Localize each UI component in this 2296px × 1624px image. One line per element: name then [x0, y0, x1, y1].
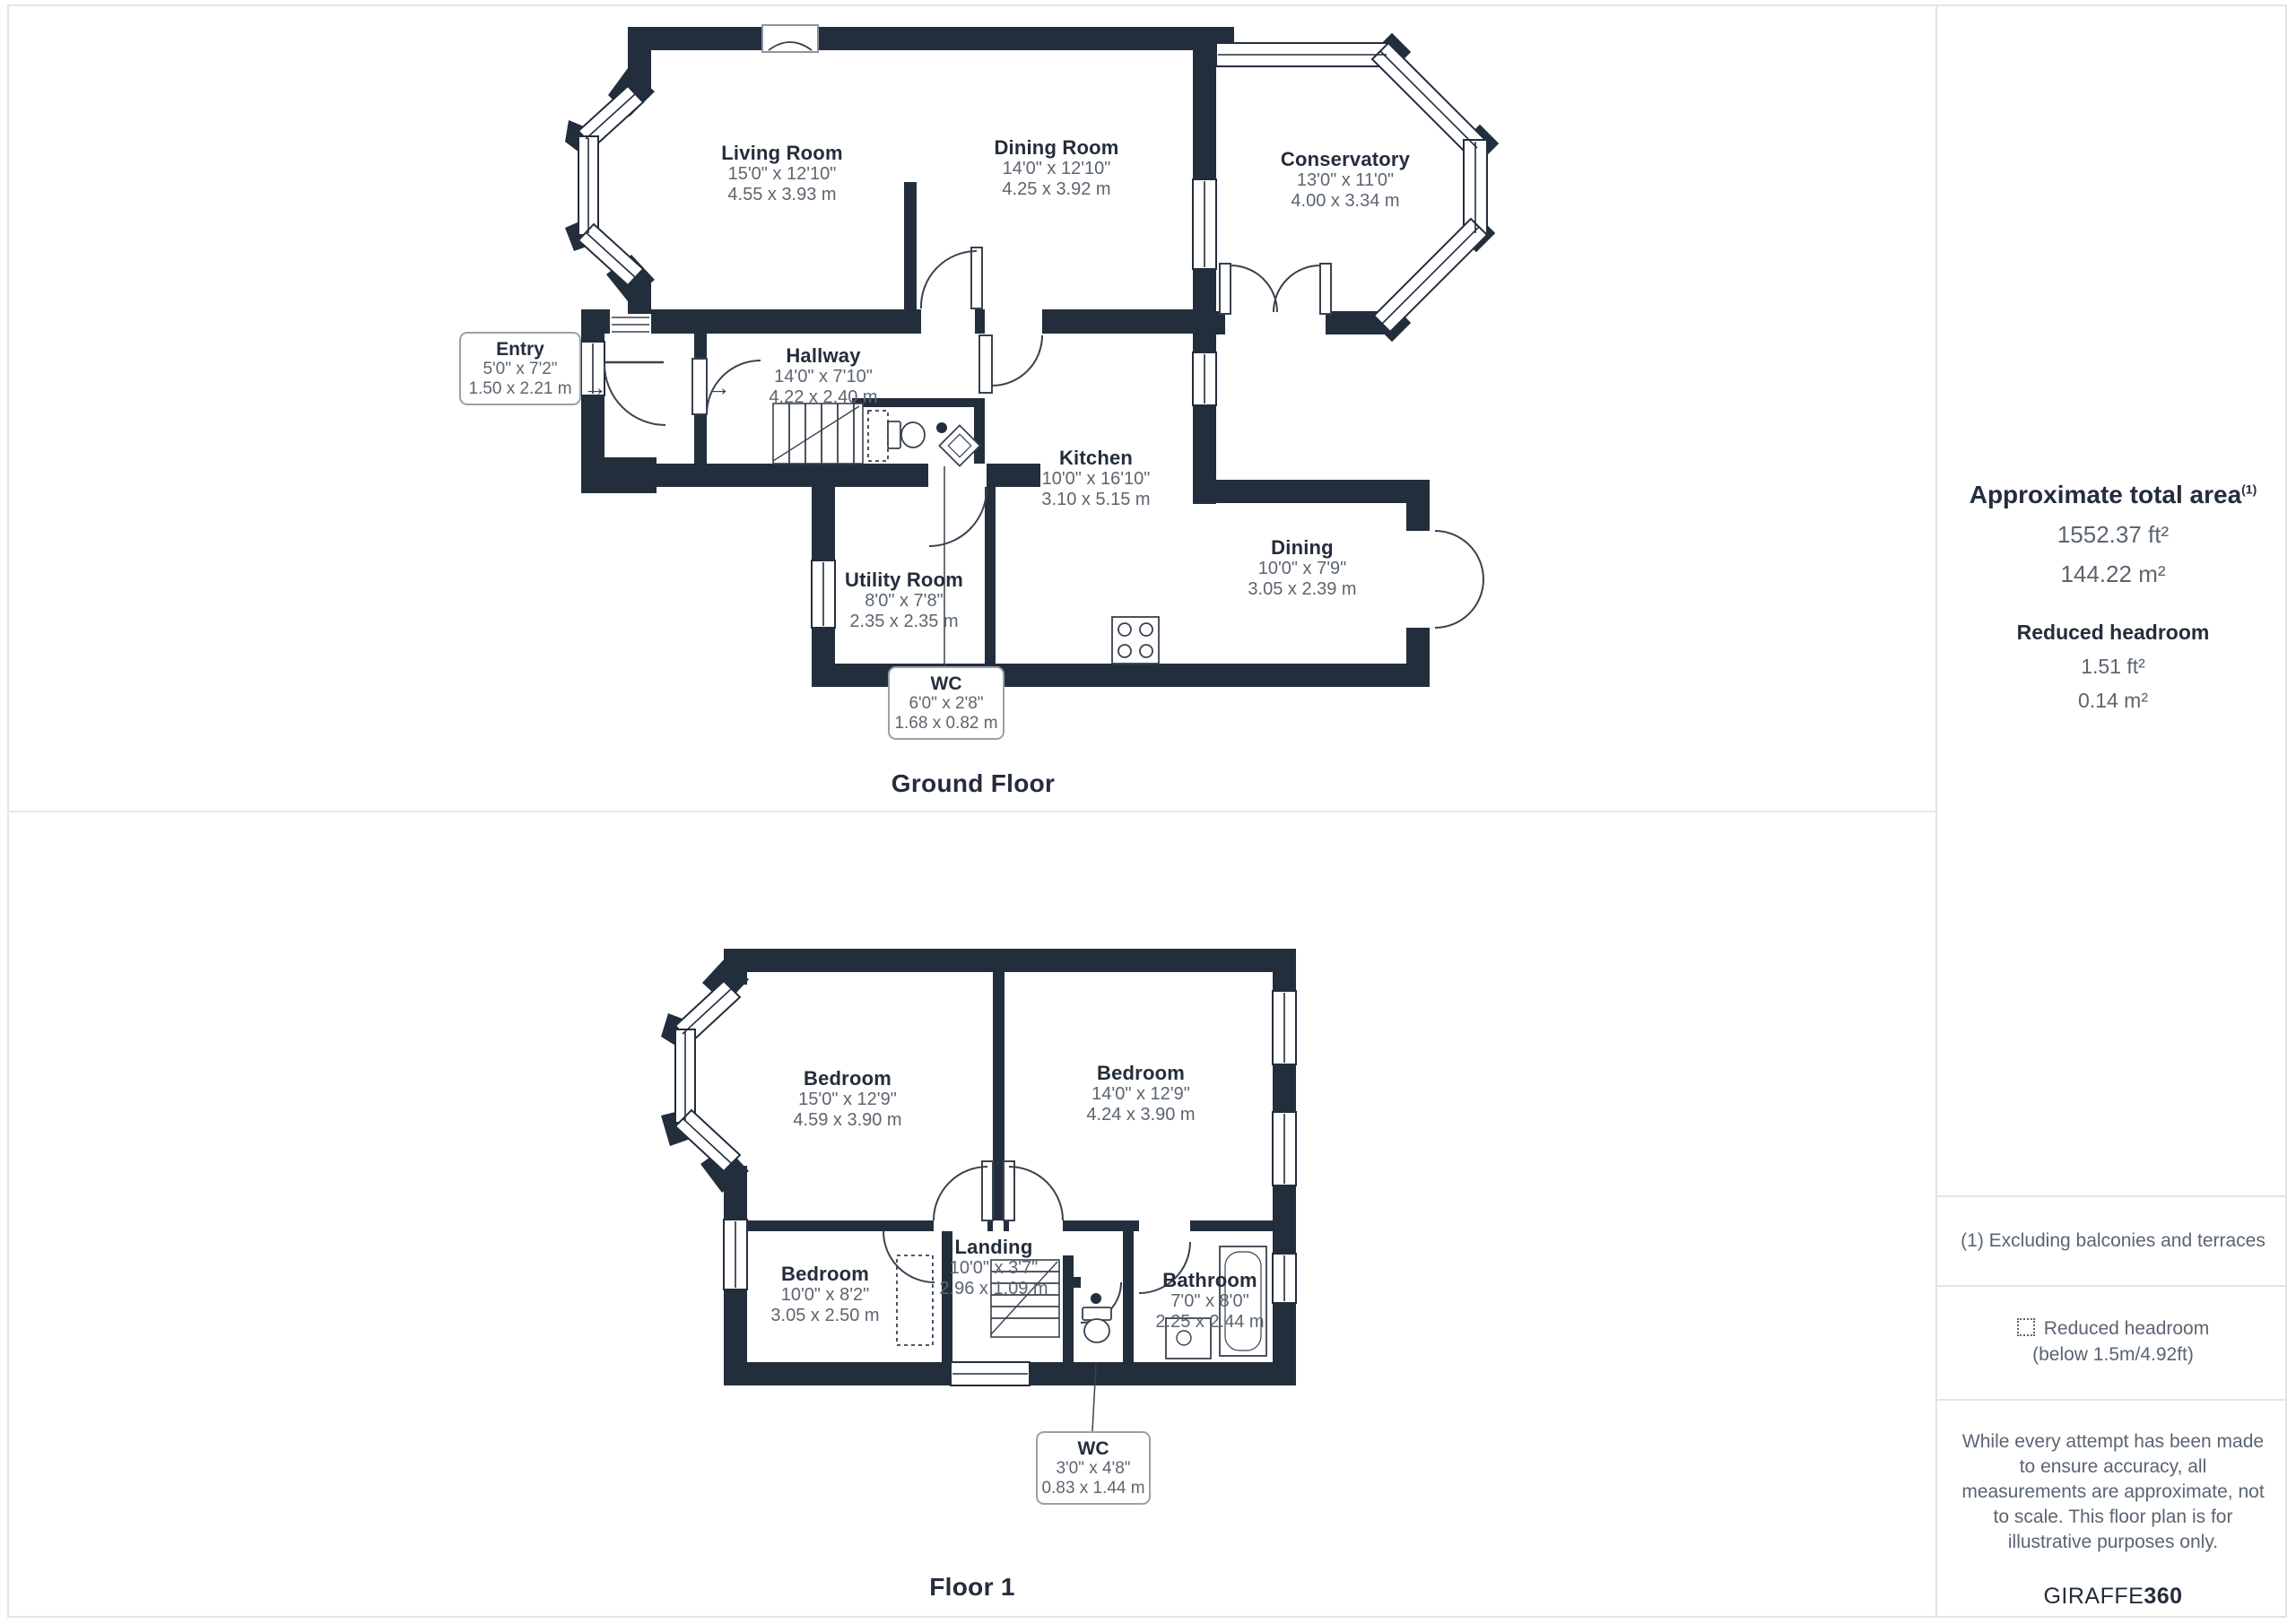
reduced-headroom-m: 0.14 m² [1937, 689, 2289, 713]
giraffe360-logo: GIRAFFE360 [1937, 1584, 2289, 1610]
floor-plan-page: Living Room 15'0" x 12'10" 4.55 x 3.93 m… [0, 0, 2296, 1624]
legend-label: Reduced headroom [2044, 1318, 2209, 1339]
legend-sub: (below 1.5m/4.92ft) [1937, 1344, 2289, 1366]
reduced-headroom-icon [2017, 1318, 2035, 1336]
sidebar-footnote: (1) Excluding balconies and terraces [1937, 1230, 2289, 1252]
reduced-headroom-ft: 1.51 ft² [1937, 655, 2289, 679]
sidebar-divider [1935, 4, 1937, 1618]
sidebar-section-divider [1937, 1399, 2287, 1401]
sidebar-area-summary: Approximate total area(1) 1552.37 ft² 14… [1937, 481, 2289, 713]
sidebar-disclaimer-block: While every attempt has been made to ens… [1937, 1429, 2289, 1610]
sidebar-legend: Reduced headroom (below 1.5m/4.92ft) [1937, 1318, 2289, 1366]
sidebar-section-divider [1937, 1195, 2287, 1197]
total-area-m: 144.22 m² [1937, 560, 2289, 588]
total-area-heading: Approximate total area(1) [1937, 481, 2289, 509]
reduced-headroom-heading: Reduced headroom [1937, 621, 2289, 645]
footnote-marker: (1) [2241, 482, 2257, 497]
sidebar-section-divider [1937, 1285, 2287, 1287]
floors-divider [7, 811, 1935, 812]
disclaimer-text: While every attempt has been made to ens… [1956, 1429, 2270, 1555]
total-area-ft: 1552.37 ft² [1937, 521, 2289, 549]
